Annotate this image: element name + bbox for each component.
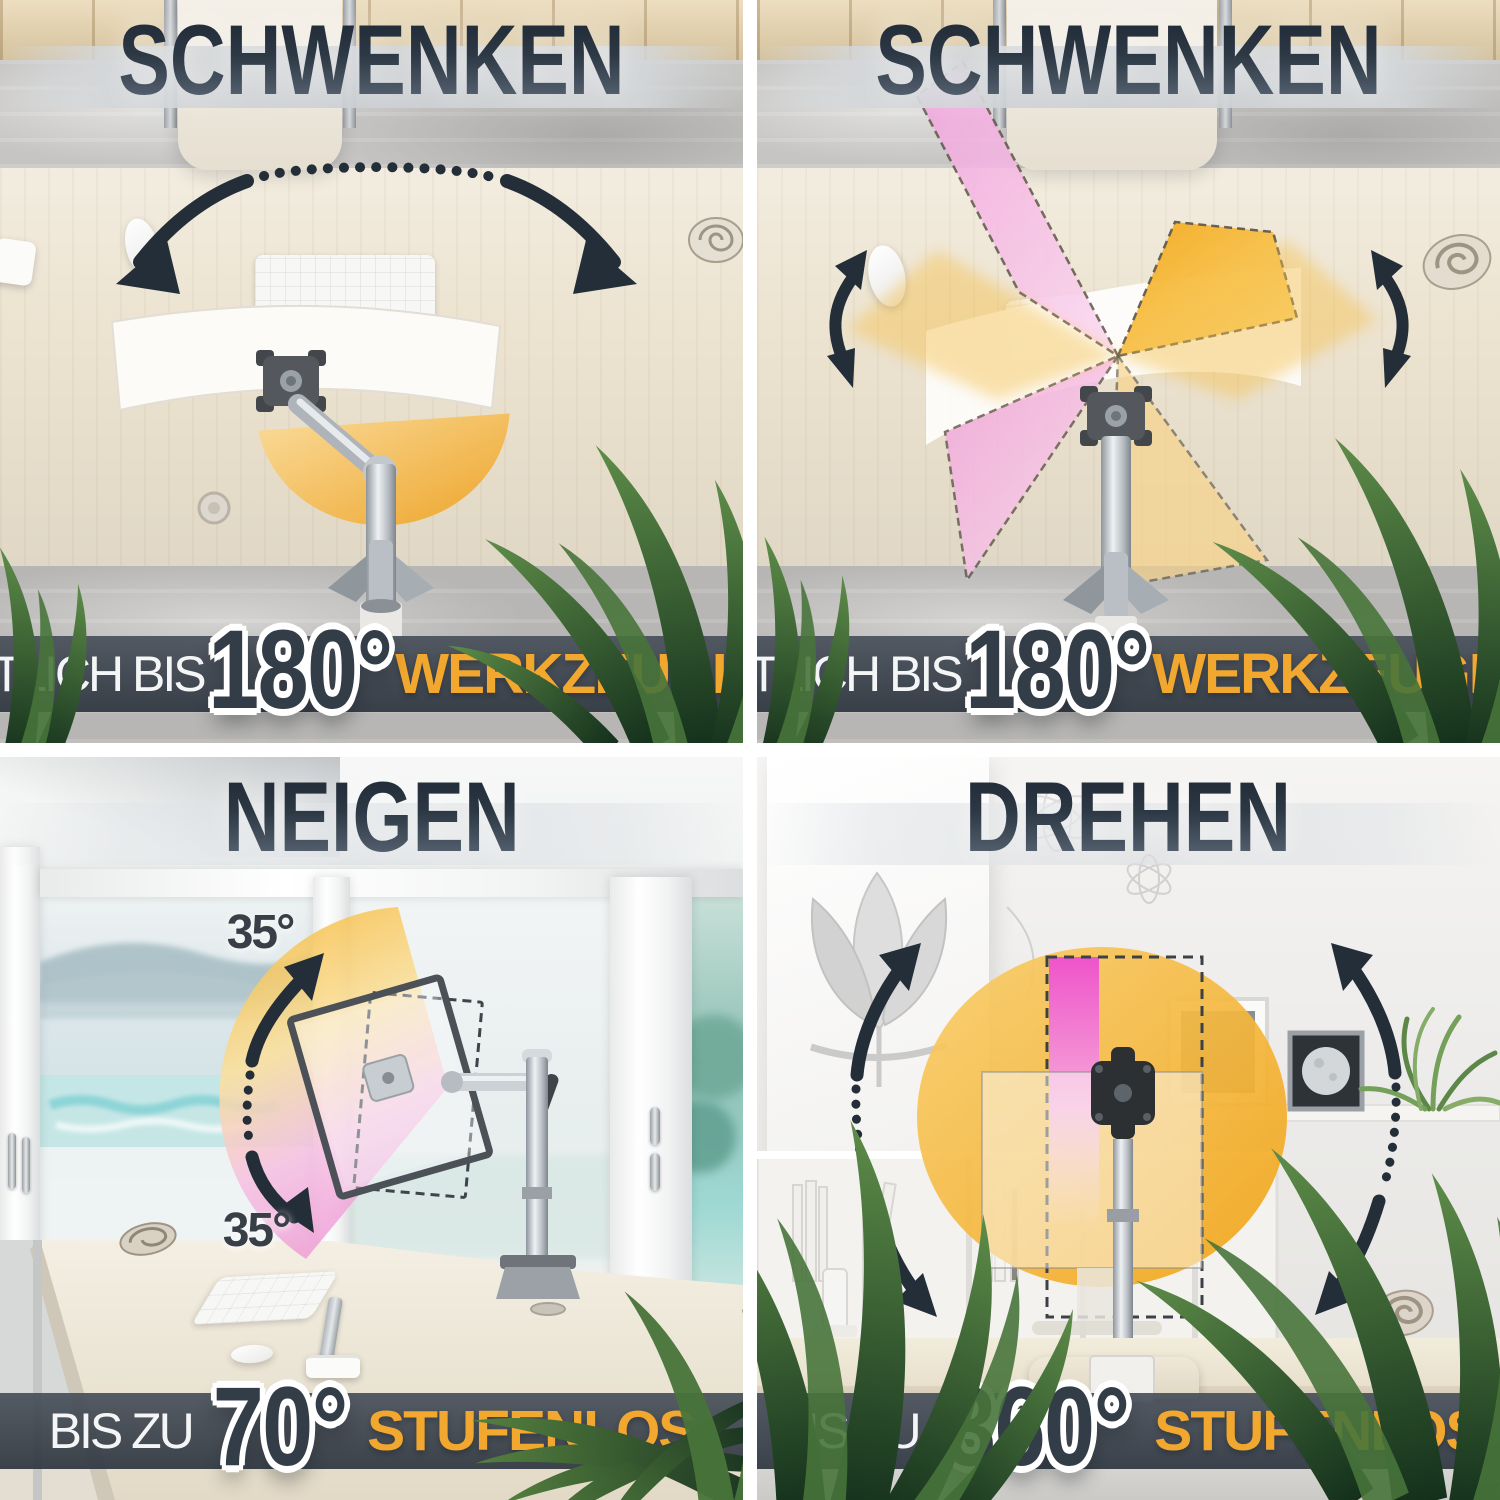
quadrant-swivel-arm: SCHWENKEN SEITLICH BIS 180° WERKZEUGLOS xyxy=(0,0,743,743)
plant-leaves-icon xyxy=(0,757,743,1500)
plant-leaves-icon xyxy=(757,757,1500,1500)
feature-grid: SCHWENKEN SEITLICH BIS 180° WERKZEUGLOS xyxy=(0,0,1500,1500)
quadrant-tilt: 35° 35° NEIGEN BIS ZU 70° STUFENLOS xyxy=(0,757,743,1500)
plant-leaves-icon xyxy=(757,0,1500,743)
quadrant-rotate: DREHEN BIS ZU 360° STUFENLOS xyxy=(757,757,1500,1500)
plant-leaves-icon xyxy=(0,0,743,743)
quadrant-swivel-pole: SCHWENKEN SEITLICH BIS 180° WERKZEUGLOS xyxy=(757,0,1500,743)
